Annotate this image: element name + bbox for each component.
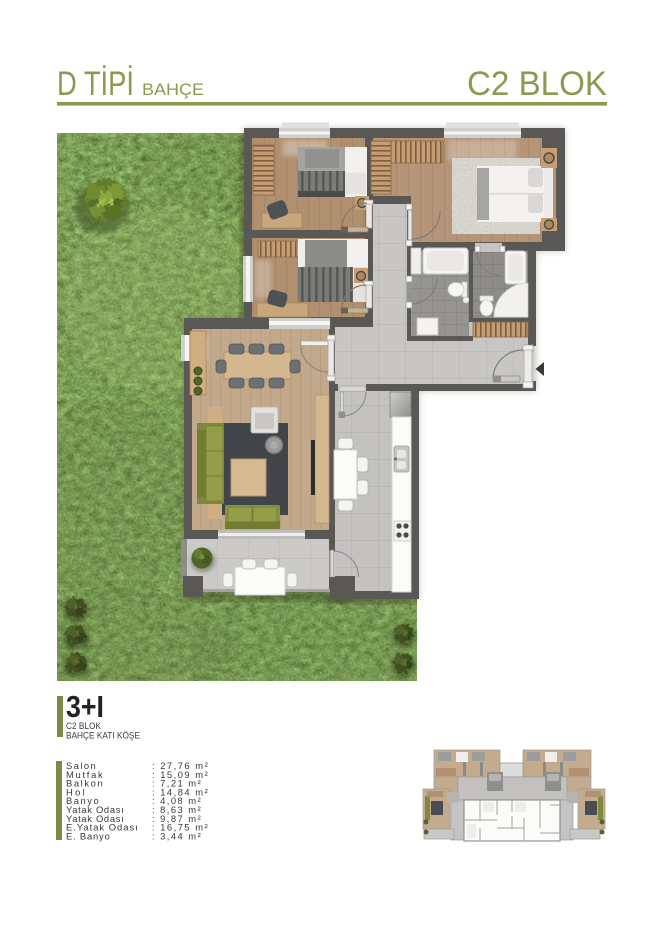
svg-text:BAHÇE: BAHÇE xyxy=(142,80,204,99)
svg-text:D TİPİ: D TİPİ xyxy=(57,65,134,103)
svg-text:C2 BLOK: C2 BLOK xyxy=(467,65,607,103)
svg-text:E. Banyo: E. Banyo xyxy=(66,830,110,841)
svg-text:BAHÇE KATI KÖŞE: BAHÇE KATI KÖŞE xyxy=(66,731,140,742)
svg-text:3+I: 3+I xyxy=(66,689,104,724)
